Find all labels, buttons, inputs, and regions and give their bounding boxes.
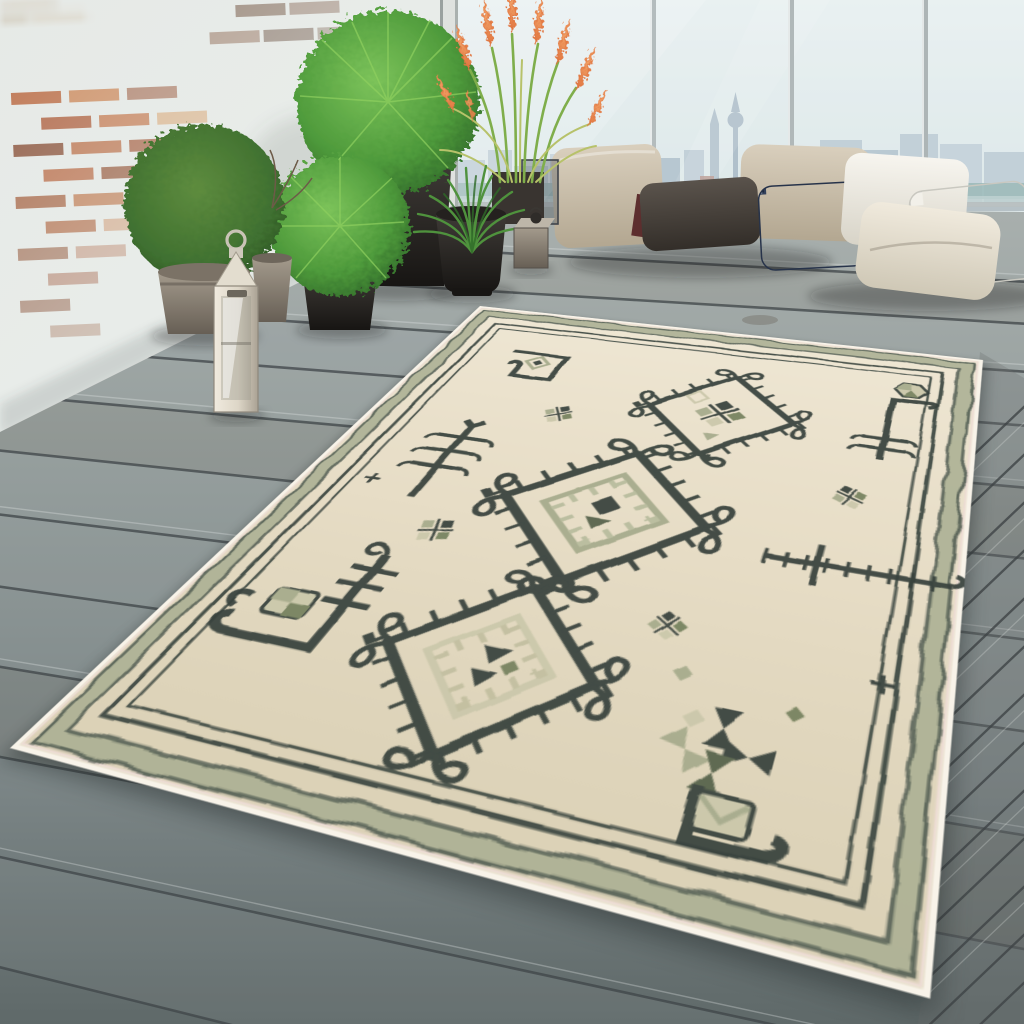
terrace-product-scene [0,0,1024,1024]
grass-ball-small [270,156,410,296]
cream-cushion-front [853,200,1002,302]
dark-grey-lumbar-cushion [639,176,761,252]
